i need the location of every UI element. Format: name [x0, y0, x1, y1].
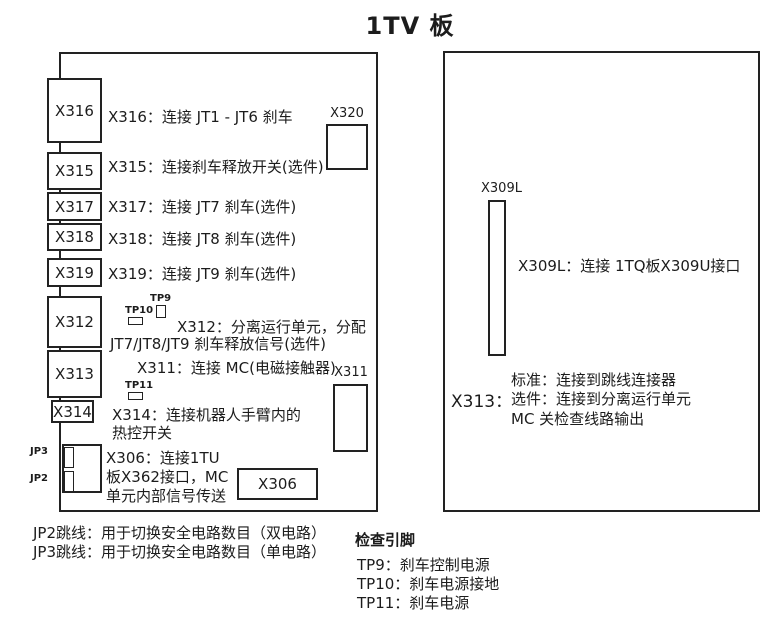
footnote-tp11: TP11：刹车电源 [357, 594, 469, 613]
desc-x309l: X309L：连接 1TQ板X309U接口 [518, 257, 740, 276]
connector-x317: X317 [47, 192, 102, 221]
connector-x318-label: X318 [55, 228, 94, 246]
desc-x314-line2: 热控开关 [112, 424, 172, 443]
connector-x319-label: X319 [55, 264, 94, 282]
tp11-label: TP11 [125, 380, 153, 391]
connector-x314: X314 [51, 400, 94, 423]
connector-x319: X319 [47, 258, 102, 287]
connector-x312-label: X312 [55, 313, 94, 331]
desc-x306-line2: 板X362接口，MC [106, 468, 228, 487]
desc-x316: X316：连接 JT1 - JT6 刹车 [108, 108, 293, 127]
connector-x311-label: X311 [333, 365, 369, 380]
footnote-jp3: JP3跳线：用于切换安全电路数目（单电路） [33, 543, 326, 562]
right-x313-line2: 选件：连接到分离运行单元 [511, 390, 691, 409]
desc-x317: X317：连接 JT7 刹车(选件) [108, 198, 296, 217]
right-x313-line3: MC 关检查线路输出 [511, 410, 644, 429]
desc-x318: X318：连接 JT8 刹车(选件) [108, 230, 296, 249]
tp11-pad [128, 392, 143, 400]
desc-x311: X311：连接 MC(电磁接触器) [137, 359, 336, 378]
desc-x315: X315：连接刹车释放开关(选件) [108, 158, 324, 177]
desc-x306-line3: 单元内部信号传送 [106, 487, 226, 506]
jp2-jumper [64, 471, 74, 492]
desc-x314-line1: X314：连接机器人手臂内的 [112, 406, 301, 425]
footnote-tp9: TP9：刹车控制电源 [357, 556, 490, 575]
tp10-label: TP10 [125, 305, 153, 316]
page-title: 1TV 板 [300, 6, 520, 41]
footnote-jp2: JP2跳线：用于切换安全电路数目（双电路） [33, 524, 326, 543]
connector-x320-label: X320 [326, 106, 368, 121]
footnote-tp10: TP10：刹车电源接地 [357, 575, 499, 594]
diagram-1tv-board: 1TV 板 X316 X315 X317 X318 X319 X312 X313… [0, 0, 767, 624]
desc-x319: X319：连接 JT9 刹车(选件) [108, 265, 296, 284]
tp9-pad [156, 305, 166, 318]
connector-x309l [488, 200, 506, 356]
connector-x315: X315 [47, 152, 102, 190]
connector-x312: X312 [47, 296, 102, 348]
connector-x314-label: X314 [53, 403, 92, 421]
connector-x309l-label: X309L [481, 181, 522, 196]
connector-x306-label: X306 [258, 475, 297, 493]
jp3-jumper [64, 447, 74, 468]
connector-x306: X306 [237, 468, 318, 500]
jp2-label: JP2 [30, 473, 48, 484]
connector-x313-label: X313 [55, 365, 94, 383]
desc-x306-line1: X306：连接1TU [106, 449, 220, 468]
desc-x312-line2: JT7/JT8/JT9 刹车释放信号(选件) [110, 335, 326, 354]
right-x313-line1: 标准：连接到跳线连接器 [511, 371, 676, 390]
connector-x311 [333, 384, 368, 452]
jp3-label: JP3 [30, 446, 48, 457]
connector-x317-label: X317 [55, 198, 94, 216]
connector-x320 [326, 124, 368, 170]
right-x313-ref: X313： [451, 387, 512, 412]
connector-x315-label: X315 [55, 162, 94, 180]
connector-x313: X313 [47, 350, 102, 398]
connector-x316: X316 [47, 78, 102, 143]
connector-x318: X318 [47, 223, 102, 251]
check-pins-title: 检查引脚 [355, 531, 415, 550]
tp10-pad [128, 317, 143, 325]
connector-x316-label: X316 [55, 102, 94, 120]
tp9-label: TP9 [150, 293, 171, 304]
